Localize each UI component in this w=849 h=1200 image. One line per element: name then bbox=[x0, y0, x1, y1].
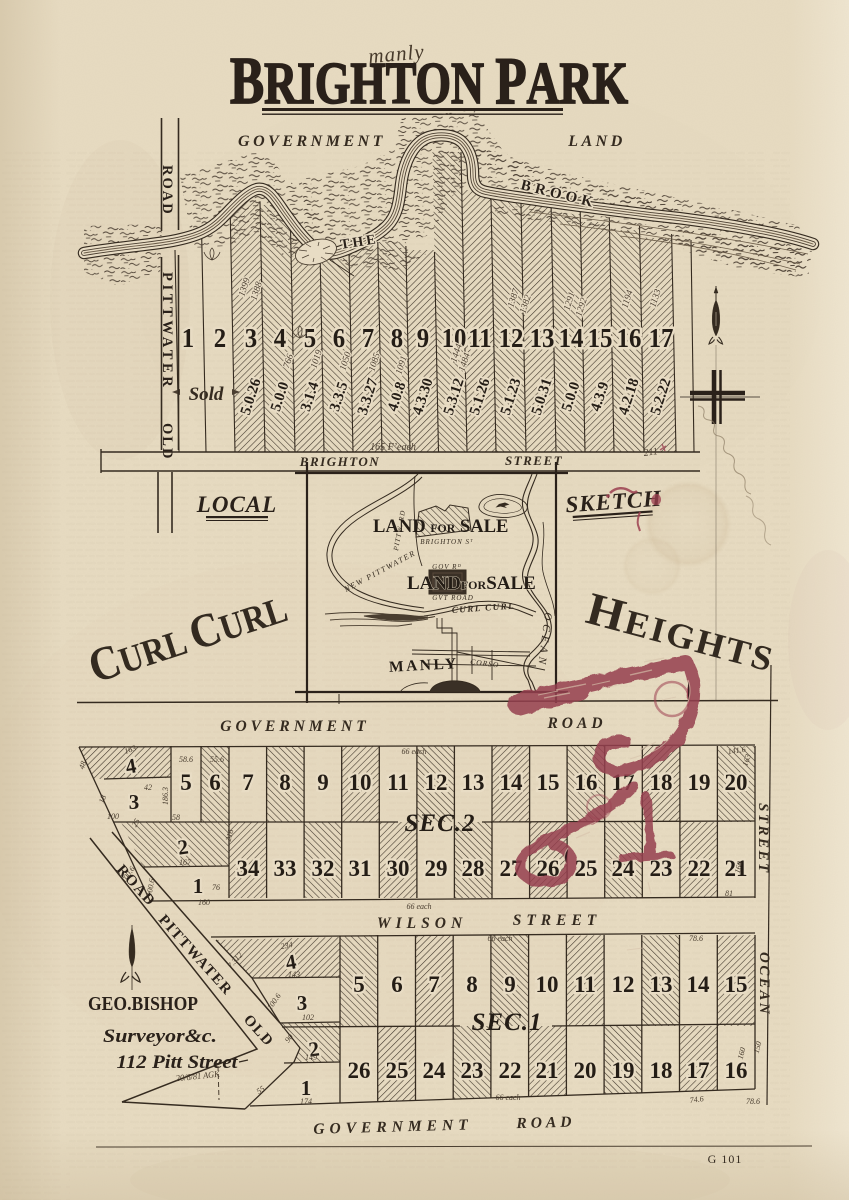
svg-text:12: 12 bbox=[612, 972, 635, 997]
svg-text:25: 25 bbox=[386, 1058, 409, 1083]
svg-text:167: 167 bbox=[179, 858, 192, 867]
svg-text:21: 21 bbox=[536, 1058, 559, 1083]
svg-text:58: 58 bbox=[172, 813, 180, 822]
svg-text:ROAD: ROAD bbox=[159, 165, 175, 216]
svg-text:81: 81 bbox=[725, 889, 733, 898]
svg-text:OCEAN: OCEAN bbox=[756, 952, 772, 1016]
svg-text:3: 3 bbox=[297, 991, 308, 1015]
svg-text:18: 18 bbox=[650, 770, 673, 795]
svg-text:7: 7 bbox=[242, 770, 254, 795]
svg-text:13: 13 bbox=[462, 770, 485, 795]
svg-text:5: 5 bbox=[180, 770, 192, 795]
svg-text:100: 100 bbox=[107, 812, 119, 821]
svg-text:33: 33 bbox=[274, 856, 297, 881]
svg-text:19: 19 bbox=[612, 1058, 635, 1083]
svg-text:WILSON: WILSON bbox=[377, 915, 467, 932]
svg-text:BRIGHTON Sᵀ: BRIGHTON Sᵀ bbox=[420, 538, 473, 546]
svg-text:16: 16 bbox=[617, 323, 642, 353]
svg-text:8: 8 bbox=[391, 323, 403, 353]
svg-text:34: 34 bbox=[237, 856, 261, 881]
svg-text:4: 4 bbox=[274, 323, 286, 353]
svg-text:11: 11 bbox=[574, 972, 596, 997]
svg-text:32: 32 bbox=[312, 856, 335, 881]
svg-text:Surveyor&c.: Surveyor&c. bbox=[103, 1026, 217, 1047]
svg-text:6: 6 bbox=[209, 770, 221, 795]
svg-text:1: 1 bbox=[193, 874, 204, 898]
svg-text:3: 3 bbox=[245, 323, 257, 353]
svg-text:13: 13 bbox=[530, 323, 555, 353]
svg-text:15: 15 bbox=[725, 972, 748, 997]
svg-text:25: 25 bbox=[575, 856, 598, 881]
svg-text:ROAD: ROAD bbox=[515, 1113, 576, 1132]
svg-text:78.6: 78.6 bbox=[746, 1097, 760, 1106]
svg-text:7: 7 bbox=[428, 972, 440, 997]
svg-text:22: 22 bbox=[688, 856, 711, 881]
svg-text:17: 17 bbox=[649, 323, 674, 353]
svg-text:13: 13 bbox=[650, 972, 673, 997]
svg-text:11: 11 bbox=[468, 323, 491, 353]
svg-text:14: 14 bbox=[687, 972, 711, 997]
svg-text:16: 16 bbox=[575, 770, 598, 795]
svg-text:186.3: 186.3 bbox=[161, 787, 170, 805]
svg-text:102: 102 bbox=[302, 1013, 314, 1022]
svg-text:18: 18 bbox=[650, 1058, 673, 1083]
svg-text:GVT ROAD: GVT ROAD bbox=[432, 594, 474, 602]
svg-text:BRIGHTON PARK: BRIGHTON PARK bbox=[230, 44, 628, 118]
svg-text:19: 19 bbox=[688, 770, 711, 795]
svg-text:22: 22 bbox=[499, 1058, 522, 1083]
svg-text:58.6: 58.6 bbox=[179, 755, 193, 764]
svg-text:26: 26 bbox=[348, 1058, 371, 1083]
svg-text:15: 15 bbox=[588, 323, 613, 353]
svg-text:78.6: 78.6 bbox=[689, 934, 703, 943]
svg-text:12: 12 bbox=[425, 770, 448, 795]
svg-text:112 Pitt Street: 112 Pitt Street bbox=[117, 1052, 239, 1073]
svg-text:LAND: LAND bbox=[567, 133, 626, 150]
svg-text:G 101: G 101 bbox=[708, 1152, 743, 1166]
svg-text:66 each: 66 each bbox=[406, 902, 431, 911]
svg-text:42: 42 bbox=[144, 783, 152, 792]
svg-text:76: 76 bbox=[212, 883, 220, 892]
svg-text:6: 6 bbox=[333, 323, 345, 353]
svg-text:31: 31 bbox=[349, 856, 372, 881]
svg-text:24: 24 bbox=[423, 1058, 447, 1083]
svg-text:20: 20 bbox=[574, 1058, 597, 1083]
svg-text:149: 149 bbox=[305, 1053, 317, 1062]
svg-text:160: 160 bbox=[198, 898, 210, 907]
svg-text:66 each: 66 each bbox=[495, 1093, 520, 1102]
svg-text:7: 7 bbox=[362, 323, 374, 353]
svg-text:8: 8 bbox=[279, 770, 291, 795]
svg-text:SEC.1: SEC.1 bbox=[471, 1009, 542, 1036]
svg-text:10: 10 bbox=[349, 770, 372, 795]
svg-text:ROAD: ROAD bbox=[546, 715, 606, 732]
svg-text:55.6: 55.6 bbox=[210, 755, 224, 764]
svg-text:9: 9 bbox=[504, 972, 516, 997]
svg-text:9: 9 bbox=[317, 770, 329, 795]
svg-text:8: 8 bbox=[466, 972, 478, 997]
svg-text:143: 143 bbox=[288, 970, 300, 979]
svg-text:STREET: STREET bbox=[505, 453, 563, 468]
svg-text:29: 29 bbox=[425, 856, 448, 881]
svg-text:15: 15 bbox=[537, 770, 560, 795]
svg-text:14: 14 bbox=[500, 770, 524, 795]
svg-text:66 each: 66 each bbox=[401, 747, 426, 756]
svg-text:STREET: STREET bbox=[513, 912, 602, 929]
svg-text:LOCAL: LOCAL bbox=[196, 492, 277, 517]
svg-text:9: 9 bbox=[417, 323, 429, 353]
svg-text:SEC.2: SEC.2 bbox=[404, 810, 475, 837]
svg-text:MANLY: MANLY bbox=[389, 655, 459, 676]
svg-text:3: 3 bbox=[129, 790, 140, 814]
svg-text:GOVERNMENT: GOVERNMENT bbox=[238, 133, 386, 150]
svg-text:174: 174 bbox=[300, 1097, 312, 1106]
svg-text:211: 211 bbox=[643, 446, 659, 459]
svg-text:GEO.BISHOP: GEO.BISHOP bbox=[88, 993, 198, 1015]
svg-text:BRIGHTON: BRIGHTON bbox=[299, 454, 380, 469]
svg-text:GOVERNMENT: GOVERNMENT bbox=[220, 718, 369, 735]
svg-text:2: 2 bbox=[214, 323, 226, 353]
svg-text:11: 11 bbox=[387, 770, 409, 795]
svg-text:5: 5 bbox=[353, 972, 365, 997]
svg-text:28: 28 bbox=[462, 856, 485, 881]
svg-text:30: 30 bbox=[387, 856, 410, 881]
svg-text:PITTWATER: PITTWATER bbox=[159, 272, 175, 390]
svg-text:14: 14 bbox=[559, 323, 584, 353]
svg-text:17: 17 bbox=[687, 1058, 710, 1083]
svg-text:6: 6 bbox=[391, 972, 403, 997]
svg-text:16: 16 bbox=[725, 1058, 748, 1083]
svg-text:10: 10 bbox=[536, 972, 559, 997]
svg-text:165 F’each: 165 F’each bbox=[370, 442, 416, 453]
svg-text:12: 12 bbox=[499, 323, 524, 353]
svg-text:OLD: OLD bbox=[159, 423, 175, 460]
svg-text:1: 1 bbox=[182, 323, 194, 353]
svg-text:20: 20 bbox=[725, 770, 748, 795]
svg-text:23: 23 bbox=[461, 1058, 484, 1083]
svg-text:Sold: Sold bbox=[189, 384, 224, 405]
svg-text:66 each: 66 each bbox=[487, 934, 512, 943]
